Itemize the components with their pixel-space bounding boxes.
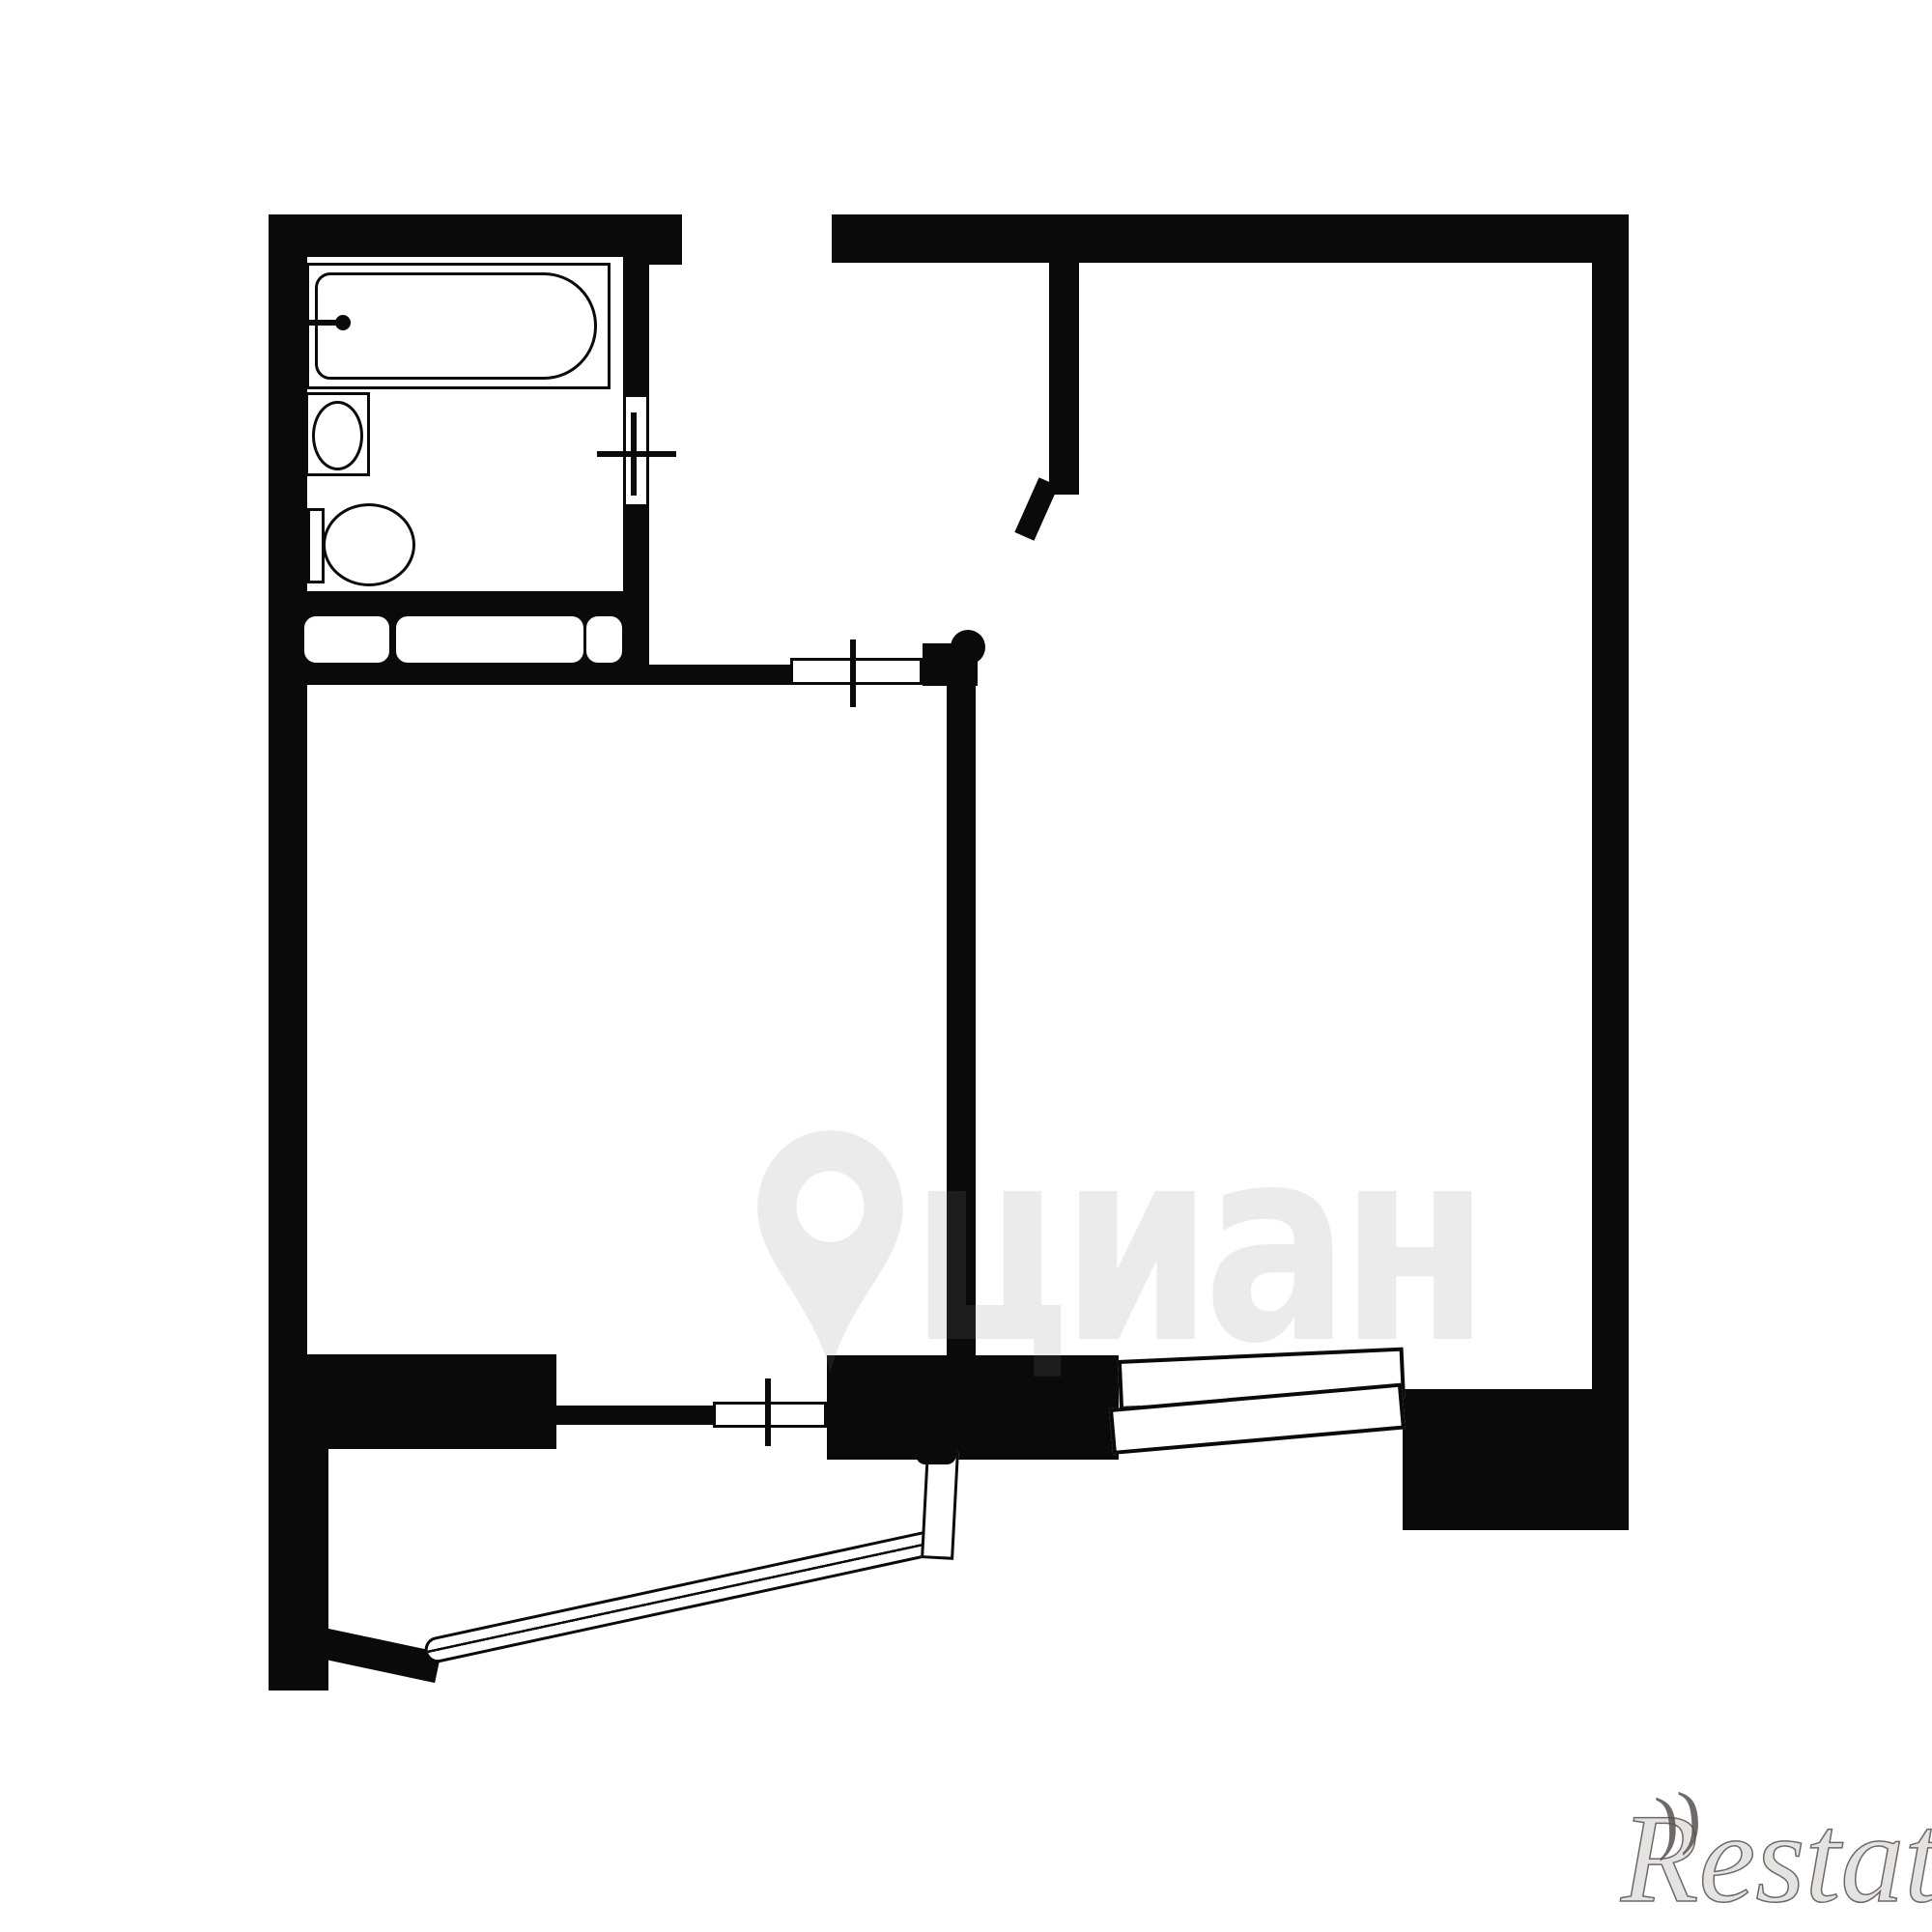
wall-top-right xyxy=(832,214,1629,263)
cian-watermark-text: циан xyxy=(910,1111,1481,1381)
wall-left xyxy=(269,214,307,1451)
wall-bathroom-right-upper xyxy=(623,257,649,396)
wall-living-bottom-thick xyxy=(307,1354,556,1449)
floor-plan-canvas: циан )) Restate xyxy=(0,0,1932,1932)
wall-right xyxy=(1592,214,1629,1530)
bathtub-drain-dot xyxy=(335,315,351,330)
restate-watermark-text: Restate xyxy=(1621,1795,1932,1922)
closet-shelves-icon xyxy=(396,616,583,663)
closet-shelves-icon xyxy=(304,616,389,663)
wall-top-left xyxy=(269,214,682,257)
wall-living-top xyxy=(307,665,790,685)
hall-window-sill xyxy=(790,658,923,685)
wall-bottom-right-block xyxy=(1403,1389,1629,1530)
window-cross-icon-balcony-door xyxy=(765,1378,771,1446)
toilet-bowl xyxy=(323,503,415,586)
balcony-railing-hook xyxy=(921,1450,959,1560)
wall-corner-dot xyxy=(951,630,985,665)
balcony-railing-cap xyxy=(916,1445,956,1464)
closet-shelves-icon xyxy=(586,616,622,663)
washbasin-bowl xyxy=(312,401,363,470)
window-cross-icon-hall xyxy=(850,639,856,707)
balcony-railing-icon xyxy=(422,1530,934,1665)
door-swing-icon xyxy=(1014,477,1058,541)
window-cross-icon-bathroom-h xyxy=(597,451,676,457)
wall-living-bottom-thin xyxy=(556,1406,713,1425)
bathtub-inner xyxy=(315,272,597,380)
map-pin-icon xyxy=(746,1122,915,1378)
wall-partition-right-room xyxy=(1049,259,1079,495)
